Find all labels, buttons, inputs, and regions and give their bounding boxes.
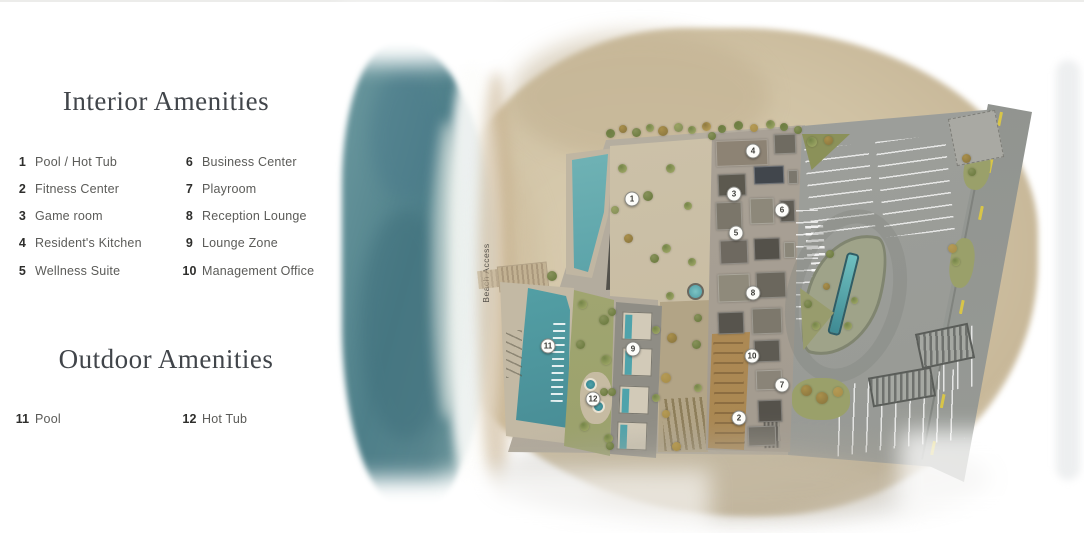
shrub-green (688, 258, 696, 266)
shrub-green (611, 206, 619, 214)
shrub-green (812, 322, 820, 330)
shrub-green (807, 137, 817, 147)
shrub-gold (658, 126, 668, 136)
amenity-label: Fitness Center (35, 182, 119, 196)
shrub-green (804, 300, 812, 308)
shrub-green (547, 271, 557, 281)
amenity-number: 12 (181, 412, 198, 426)
map-marker-9: 9 (626, 342, 641, 357)
amenity-item: 10Management Office (181, 264, 314, 282)
shrub-green (578, 300, 587, 309)
shrub-green (600, 388, 608, 396)
map-marker-7: 7 (775, 378, 790, 393)
amenity-label: Management Office (202, 264, 314, 278)
shrub-green (968, 168, 976, 176)
amenity-number: 7 (181, 182, 198, 196)
map-marker-6: 6 (775, 203, 790, 218)
amenity-label: Hot Tub (202, 412, 247, 426)
amenity-number: 2 (14, 182, 31, 196)
shrub-gold (833, 387, 843, 397)
map-marker-4: 4 (746, 144, 761, 159)
shrub-green (666, 164, 675, 173)
shrub-gold (702, 122, 711, 131)
amenity-item: 8Reception Lounge (181, 209, 307, 227)
shrub-gold (672, 442, 681, 451)
amenity-item: 4Resident's Kitchen (14, 236, 142, 254)
map-marker-1: 1 (625, 192, 640, 207)
site-map: Beach Access (360, 0, 1084, 533)
shrub-green (580, 422, 589, 431)
shrub-gold (816, 392, 828, 404)
shrub-green (666, 292, 674, 300)
amenity-item: 11Pool (14, 412, 61, 430)
map-marker-11: 11 (541, 339, 556, 354)
map-marker-3: 3 (727, 187, 742, 202)
shrub-gold (619, 125, 627, 133)
shrub-green (694, 384, 702, 392)
amenity-number: 10 (181, 264, 198, 278)
interior-amenities-title: Interior Amenities (0, 86, 332, 117)
shrub-green (708, 132, 716, 140)
shrub-gold (624, 234, 633, 243)
amenity-label: Lounge Zone (202, 236, 278, 250)
amenity-label: Reception Lounge (202, 209, 307, 223)
shrub-gold (948, 244, 957, 253)
shrub-green (632, 128, 641, 137)
amenity-label: Playroom (202, 182, 256, 196)
shrub-gold (662, 410, 670, 418)
shrub-gold (962, 154, 971, 163)
shrub-green (734, 121, 743, 130)
amenity-label: Pool / Hot Tub (35, 155, 117, 169)
map-marker-12: 12 (586, 392, 601, 407)
shrub-green (606, 442, 614, 450)
map-marker-5: 5 (729, 226, 744, 241)
shrub-green (826, 250, 834, 258)
shrub-green (851, 297, 858, 304)
map-marker-2: 2 (732, 411, 747, 426)
edge-fade (450, 470, 710, 533)
amenity-label: Pool (35, 412, 61, 426)
amenity-number: 1 (14, 155, 31, 169)
shrub-green (674, 123, 683, 132)
amenity-item: 2Fitness Center (14, 182, 119, 200)
shrub-green (684, 202, 692, 210)
amenity-item: 6Business Center (181, 155, 297, 173)
amenity-number: 5 (14, 264, 31, 278)
shrub-green (718, 125, 726, 133)
shrub-green (688, 126, 696, 134)
shrub-green (601, 355, 611, 365)
edge-fade (900, 430, 1080, 520)
amenity-item: 7Playroom (181, 182, 256, 200)
shrub-green (780, 123, 788, 131)
amenities-site-plan-page: { "legend": { "interior": { "title": "In… (0, 0, 1084, 533)
shrub-green (662, 244, 671, 253)
shrub-green (606, 129, 615, 138)
shrub-green (650, 254, 659, 263)
shrub-gold (661, 373, 671, 383)
shrub-green (646, 124, 654, 132)
amenity-number: 6 (181, 155, 198, 169)
amenity-label: Business Center (202, 155, 297, 169)
shrub-gold (824, 136, 833, 145)
shrub-green (652, 326, 660, 334)
amenity-number: 3 (14, 209, 31, 223)
amenity-item: 1Pool / Hot Tub (14, 155, 117, 173)
amenity-label: Wellness Suite (35, 264, 120, 278)
watercolor-wash (1056, 60, 1080, 480)
shrub-green (694, 314, 702, 322)
amenity-item: 12Hot Tub (181, 412, 247, 430)
shrub-green (766, 120, 775, 129)
map-marker-10: 10 (745, 349, 760, 364)
amenity-item: 3Game room (14, 209, 103, 227)
shrub-green (576, 340, 585, 349)
amenity-label: Resident's Kitchen (35, 236, 142, 250)
shrub-green (608, 308, 616, 316)
shrub-green (844, 322, 852, 330)
amenity-number: 4 (14, 236, 31, 250)
amenity-item: 9Lounge Zone (181, 236, 278, 254)
amenity-label: Game room (35, 209, 103, 223)
amenity-number: 9 (181, 236, 198, 250)
shrub-green (599, 315, 609, 325)
legend-panel: Interior Amenities 1Pool / Hot Tub 2Fitn… (0, 0, 360, 533)
map-marker-8: 8 (746, 286, 761, 301)
shrub-green (692, 340, 701, 349)
shrub-green (608, 388, 616, 396)
shrub-green (794, 126, 802, 134)
amenity-number: 8 (181, 209, 198, 223)
shrub-gold (667, 333, 677, 343)
outdoor-amenities-title: Outdoor Amenities (0, 344, 332, 375)
shrub-gold (750, 124, 758, 132)
shrub-green (652, 394, 660, 402)
shrub-gold (823, 283, 830, 290)
shrub-gold (801, 385, 812, 396)
shrub-green (643, 191, 653, 201)
amenity-number: 11 (14, 412, 31, 426)
shrub-green (618, 164, 627, 173)
amenity-item: 5Wellness Suite (14, 264, 120, 282)
shrub-green (952, 258, 960, 266)
